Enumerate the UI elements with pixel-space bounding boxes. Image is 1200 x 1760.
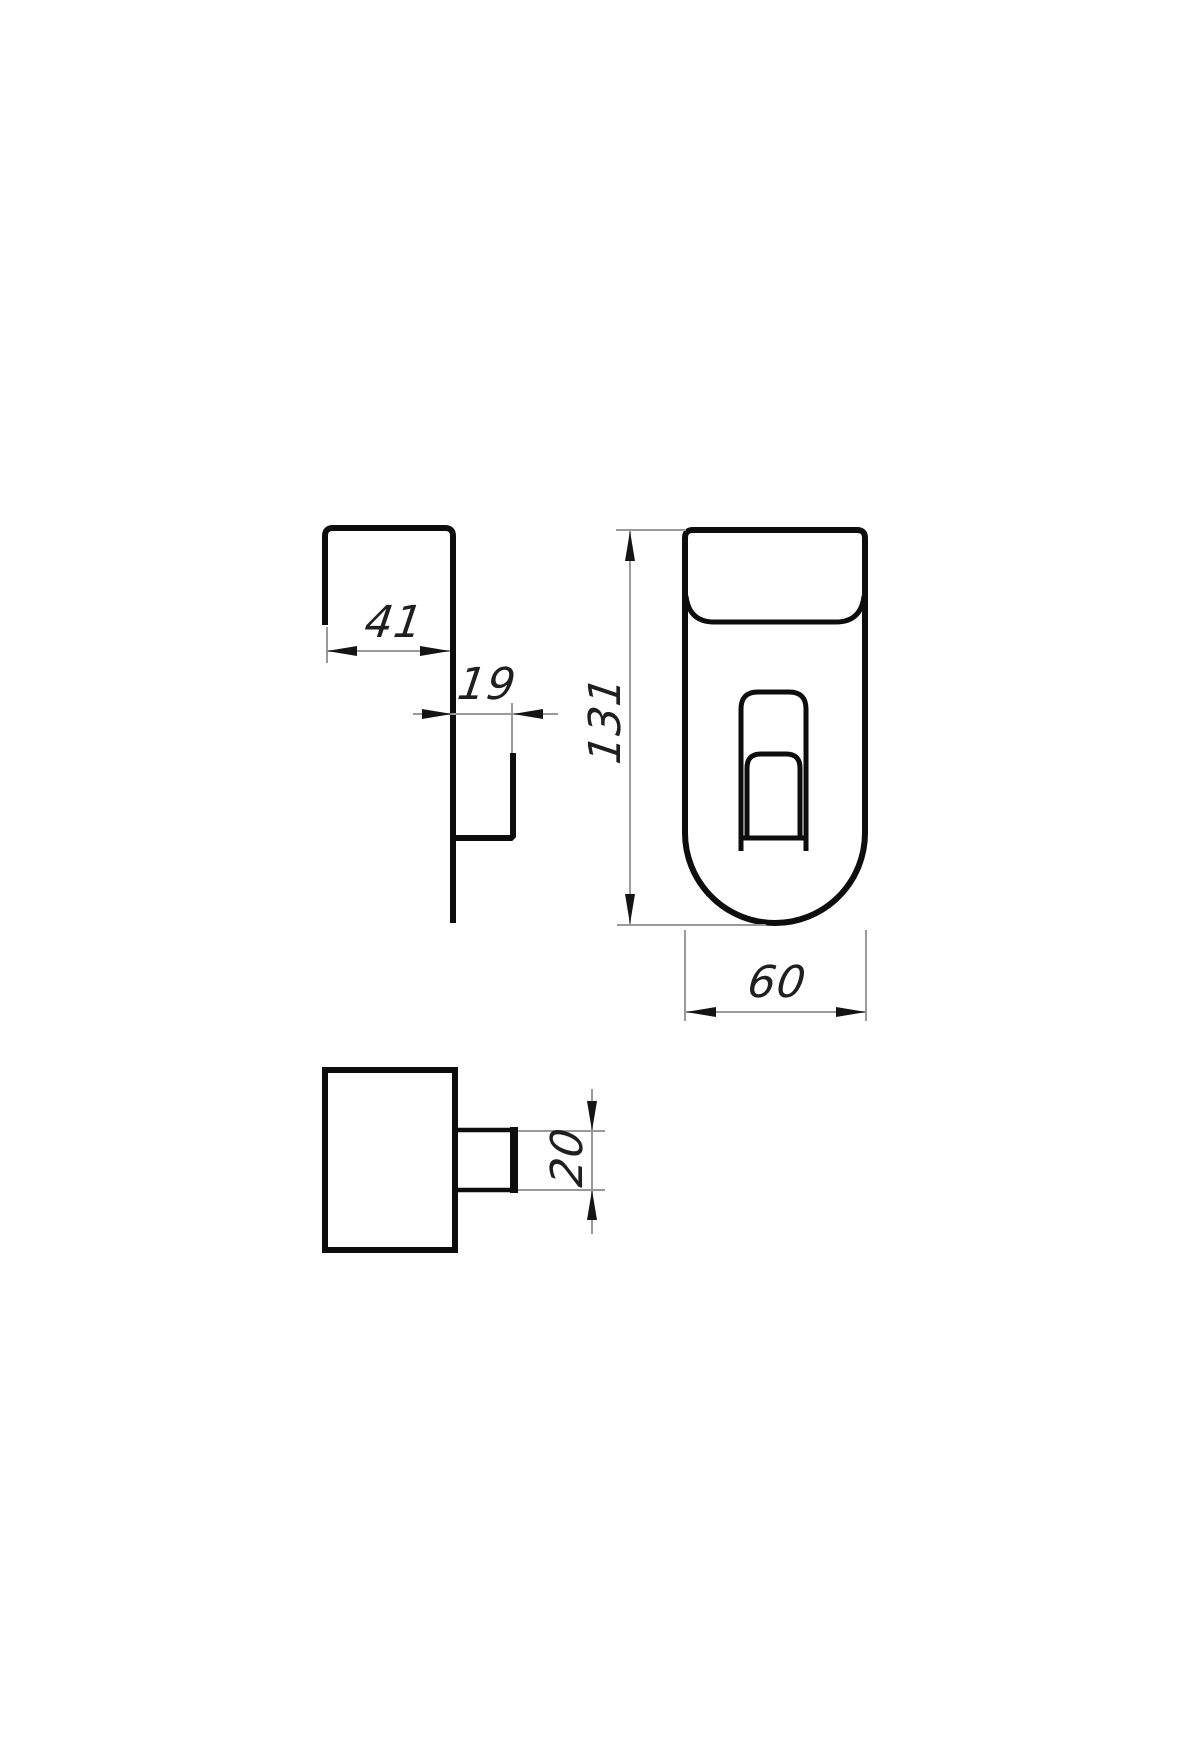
dim-label-41: 41 <box>361 597 426 648</box>
drawing-sheet: 41 19 131 60 20 <box>0 0 1200 1760</box>
sheet-background <box>0 0 1200 1760</box>
dim-label-20: 20 <box>542 1124 593 1189</box>
dim-label-19: 19 <box>454 659 519 710</box>
dim-label-131: 131 <box>580 673 631 767</box>
dim-label-60: 60 <box>744 957 809 1008</box>
technical-drawing: 41 19 131 60 20 <box>0 0 1200 1760</box>
